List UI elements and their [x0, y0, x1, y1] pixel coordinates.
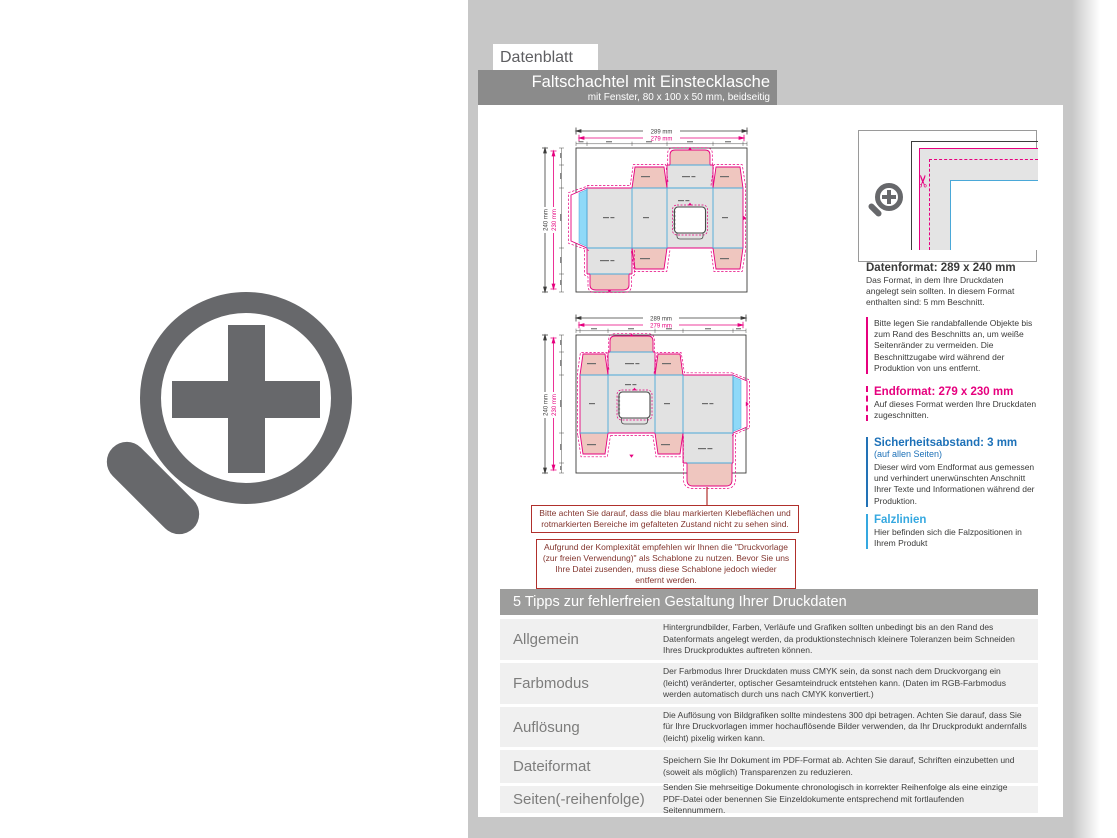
tip-text: Der Farbmodus Ihrer Druckdaten muss CMYK…: [663, 663, 1028, 704]
datenformat-section: Datenformat: 289 x 240 mm Das Format, in…: [866, 262, 1038, 309]
dieline-drawing-front: 289 mm 279 mm 240 mm 230 mm: [540, 122, 810, 297]
preview-safety-line: [950, 180, 1038, 250]
tip-label: Dateiformat: [513, 750, 591, 783]
tip-text: Hintergrundbilder, Farben, Verläufe und …: [663, 619, 1028, 660]
tip-text: Die Auflösung von Bildgrafiken sollte mi…: [663, 707, 1028, 747]
plus-vertical-bar: [228, 325, 265, 473]
sicherheitsabstand-section: Sicherheitsabstand: 3 mm (auf allen Seit…: [866, 437, 1038, 507]
falzlinien-body: Hier befinden sich die Falzpositionen in…: [874, 527, 1038, 549]
tip-text: Senden Sie mehrseitige Dokumente chronol…: [663, 786, 1028, 813]
dieline-drawing-back: 289 mm 279 mm 240 mm 230 mm: [540, 310, 810, 510]
dim-outer-height-front: 240 mm: [544, 209, 550, 231]
tip-row-seitenreihenfolge: Seiten(-reihenfolge) Senden Sie mehrseit…: [500, 786, 1038, 813]
product-title: Faltschachtel mit Einstecklasche: [478, 70, 777, 92]
dim-outer-width-back: 289 mm: [650, 316, 672, 322]
product-subtitle: mit Fenster, 80 x 100 x 50 mm, beidseiti…: [478, 92, 777, 104]
datenformat-note-text: Bitte legen Sie randabfallende Objekte b…: [874, 318, 1038, 374]
datenblatt-tab: Datenblatt: [493, 44, 598, 70]
note-box-glue-areas: Bitte achten Sie darauf, dass die blau m…: [531, 505, 799, 533]
preview-bleed-line: [919, 148, 1038, 250]
dim-outer-height-back: 240 mm: [544, 394, 550, 416]
tip-label: Auflösung: [513, 707, 580, 747]
window-cutout-back: [619, 392, 650, 418]
endformat-section: Endformat: 279 x 230 mm Auf dieses Forma…: [866, 386, 1038, 421]
preview-trim-line: [929, 159, 1038, 250]
tip-row-aufloesung: Auflösung Die Auflösung von Bildgrafiken…: [500, 707, 1038, 747]
dim-outer-width-front: 289 mm: [651, 129, 673, 135]
datenformat-heading: Datenformat: 289 x 240 mm: [866, 262, 1038, 274]
endformat-body: Auf dieses Format werden Ihre Druckdaten…: [874, 399, 1038, 421]
tip-row-farbmodus: Farbmodus Der Farbmodus Ihrer Druckdaten…: [500, 663, 1038, 704]
title-bar: Faltschachtel mit Einstecklasche mit Fen…: [478, 70, 777, 105]
datenformat-note: Bitte legen Sie randabfallende Objekte b…: [866, 317, 1038, 374]
tip-label: Allgemein: [513, 619, 579, 660]
falzlinien-heading: Falzlinien: [874, 514, 1038, 526]
sicherheitsabstand-heading: Sicherheitsabstand: 3 mm: [874, 437, 1038, 449]
tip-row-dateiformat: Dateiformat Speichern Sie Ihr Dokument i…: [500, 750, 1038, 783]
tip-label: Farbmodus: [513, 663, 589, 704]
dim-trim-height-front: 230 mm: [552, 209, 558, 231]
window-cutout-front: [675, 207, 706, 233]
tip-text: Speichern Sie Ihr Dokument im PDF-Format…: [663, 750, 1028, 783]
datenformat-body: Das Format, in dem Ihre Druckdaten angel…: [866, 275, 1038, 309]
falzlinien-section: Falzlinien Hier befinden sich die Falzpo…: [866, 514, 1038, 549]
note-box-template: Aufgrund der Komplexität empfehlen wir I…: [536, 539, 796, 589]
page-shadow: [1072, 0, 1100, 838]
tip-label: Seiten(-reihenfolge): [513, 786, 645, 813]
endformat-heading: Endformat: 279 x 230 mm: [874, 386, 1038, 398]
tips-section-heading: 5 Tipps zur fehlerfreien Gestaltung Ihre…: [500, 589, 1038, 615]
tip-row-allgemein: Allgemein Hintergrundbilder, Farben, Ver…: [500, 619, 1038, 660]
sicherheitsabstand-body: Dieser wird vom Endformat aus gemessen u…: [874, 462, 1038, 507]
dim-trim-height-back: 230 mm: [552, 394, 558, 416]
mini-plus-vertical: [887, 190, 891, 204]
dim-trim-width-front: 279 mm: [651, 136, 673, 142]
sicherheitsabstand-subheading: (auf allen Seiten): [874, 449, 1038, 461]
scissors-icon: ✂: [914, 174, 934, 188]
zoom-preview-box: ✂: [858, 130, 1037, 262]
